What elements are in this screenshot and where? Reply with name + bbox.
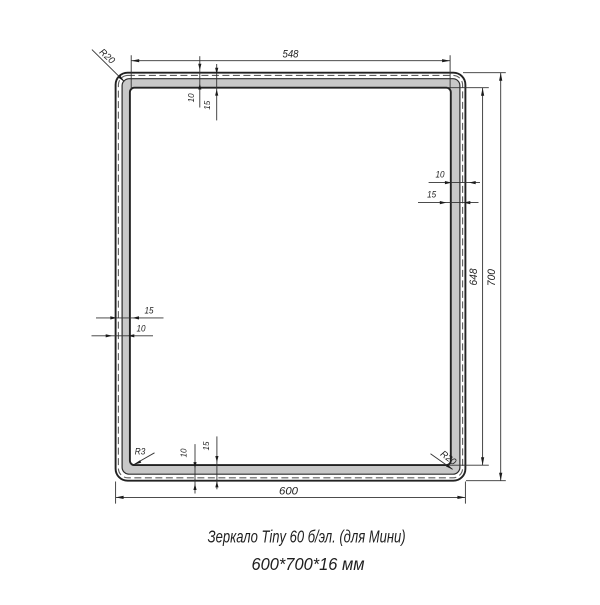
svg-text:Зеркало Tiny 60 б/эл. (для Мин: Зеркало Tiny 60 б/эл. (для Мини) (208, 527, 406, 547)
svg-text:15: 15 (202, 101, 212, 110)
svg-text:10: 10 (178, 448, 188, 457)
svg-text:15: 15 (201, 441, 211, 450)
svg-text:10: 10 (436, 170, 445, 180)
svg-text:15: 15 (145, 305, 155, 315)
svg-text:10: 10 (186, 93, 196, 102)
svg-text:648: 648 (468, 268, 480, 286)
svg-text:600*700*16 мм: 600*700*16 мм (252, 554, 365, 574)
svg-text:600: 600 (279, 486, 299, 498)
svg-text:15: 15 (427, 190, 437, 200)
svg-text:700: 700 (486, 268, 498, 286)
svg-text:548: 548 (283, 48, 300, 60)
svg-text:R3: R3 (135, 447, 146, 458)
svg-text:10: 10 (137, 324, 146, 334)
